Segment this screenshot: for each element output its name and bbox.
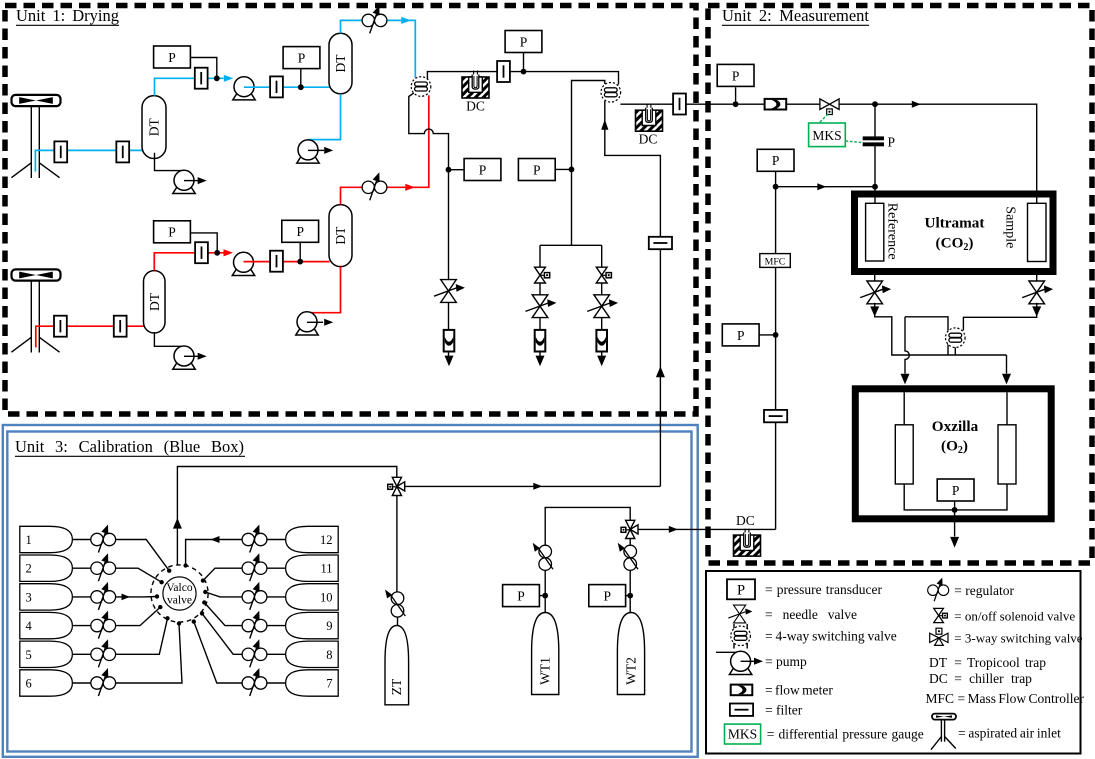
- svg-text:Ultramat: Ultramat: [925, 214, 985, 231]
- svg-text:DC: DC: [929, 671, 948, 686]
- svg-text:MFC: MFC: [765, 256, 786, 267]
- svg-text:(O2): (O2): [941, 437, 968, 456]
- svg-text:= 3-way switching valve: = 3-way switching valve: [954, 630, 1083, 645]
- svg-text:3: 3: [26, 590, 32, 604]
- svg-text:P: P: [888, 135, 896, 150]
- svg-text:valve: valve: [167, 595, 192, 607]
- svg-text:MFC: MFC: [926, 691, 955, 706]
- svg-text:Unit 3: Calibration (Blue Box): Unit 3: Calibration (Blue Box): [15, 437, 244, 456]
- svg-text:= flow meter: = flow meter: [765, 683, 833, 698]
- svg-text:DT: DT: [929, 655, 948, 670]
- svg-text:Unit 2: Measurement: Unit 2: Measurement: [722, 6, 869, 25]
- svg-text:Reference: Reference: [885, 203, 900, 260]
- svg-text:5: 5: [26, 648, 32, 662]
- svg-text:= differential pressure gauge: = differential pressure gauge: [767, 727, 924, 742]
- svg-text:= Tropicool trap: = Tropicool trap: [954, 655, 1046, 670]
- svg-text:= filter: = filter: [765, 703, 803, 718]
- svg-text:= pump: = pump: [765, 654, 807, 669]
- svg-text:= on/off solenoid valve: = on/off solenoid valve: [954, 608, 1075, 623]
- svg-text:= needle valve: = needle valve: [765, 607, 857, 622]
- svg-text:= 4-way switching valve: = 4-way switching valve: [765, 629, 897, 644]
- svg-text:P: P: [737, 583, 745, 599]
- svg-text:(CO2): (CO2): [936, 234, 974, 253]
- svg-text:DC: DC: [736, 513, 755, 528]
- svg-text:= Mass Flow Controller: = Mass Flow Controller: [958, 691, 1085, 706]
- svg-text:DC: DC: [639, 132, 658, 147]
- svg-text:Unit 1: Drying: Unit 1: Drying: [16, 6, 119, 25]
- svg-text:6: 6: [26, 677, 32, 691]
- svg-text:DT: DT: [333, 54, 348, 73]
- svg-text:MKS: MKS: [812, 128, 841, 143]
- svg-text:DC: DC: [466, 99, 485, 114]
- svg-text:= chiller trap: = chiller trap: [954, 671, 1032, 686]
- svg-text:= aspirated air inlet: = aspirated air inlet: [958, 725, 1061, 740]
- svg-text:7: 7: [326, 677, 332, 691]
- svg-text:4: 4: [26, 619, 33, 633]
- svg-text:2: 2: [26, 562, 32, 576]
- svg-text:WT2: WT2: [623, 657, 638, 685]
- svg-text:= regulator: = regulator: [954, 583, 1014, 598]
- svg-text:MKS: MKS: [728, 727, 757, 742]
- svg-text:9: 9: [326, 619, 332, 633]
- svg-text:DT: DT: [147, 117, 162, 136]
- svg-text:12: 12: [320, 533, 333, 547]
- svg-text:1: 1: [26, 533, 32, 547]
- svg-text:DT: DT: [333, 226, 348, 245]
- svg-text:= pressure transducer: = pressure transducer: [765, 582, 882, 597]
- svg-text:WT1: WT1: [538, 657, 553, 685]
- svg-text:Valco: Valco: [166, 582, 192, 594]
- svg-text:DT: DT: [147, 292, 162, 311]
- svg-text:8: 8: [326, 648, 332, 662]
- svg-text:ZT: ZT: [389, 678, 404, 695]
- svg-text:Oxzilla: Oxzilla: [932, 418, 979, 435]
- svg-text:Sample: Sample: [1002, 206, 1017, 248]
- svg-text:11: 11: [320, 562, 332, 576]
- svg-text:10: 10: [320, 590, 333, 604]
